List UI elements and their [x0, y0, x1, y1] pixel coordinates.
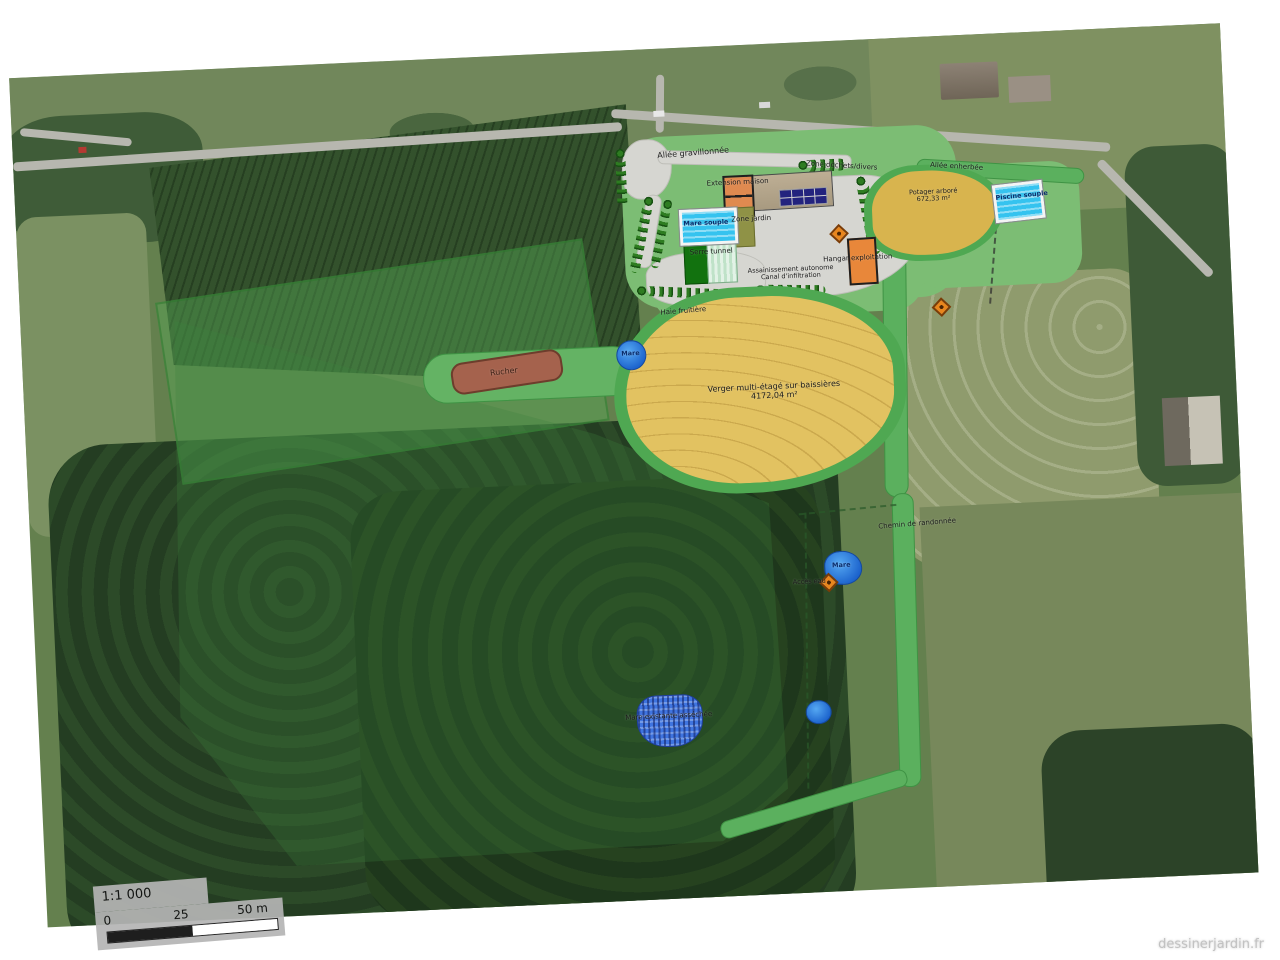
acces-eau-label: Accès eau: [793, 578, 826, 587]
photo-bottomright-trees: [1040, 722, 1259, 927]
mare-mid-label: Mare: [832, 562, 851, 570]
solar-panels[interactable]: [779, 187, 828, 207]
car-white-2: [759, 102, 770, 108]
house-east: [1162, 396, 1223, 467]
house-north-1: [939, 61, 999, 100]
scale-tick-50: 50 m: [237, 901, 269, 917]
scale-ratio: 1:1 000: [101, 886, 152, 905]
scale-tick-25: 25: [173, 907, 189, 922]
watermark-link[interactable]: dessinerjardin.fr: [1158, 937, 1264, 952]
rotated-plan-layer: Verger multi-étagé sur baissières 4172,0…: [0, 0, 1280, 960]
car-red: [78, 147, 86, 153]
driveway: [656, 75, 664, 133]
scale-tick-0: 0: [103, 913, 112, 928]
mare-north-label: Mare: [621, 350, 640, 358]
house-north-2: [1008, 75, 1051, 103]
scale-bar-segments: [106, 918, 278, 944]
car-white-1: [653, 111, 664, 117]
map-canvas: Verger multi-étagé sur baissières 4172,0…: [0, 0, 1280, 960]
